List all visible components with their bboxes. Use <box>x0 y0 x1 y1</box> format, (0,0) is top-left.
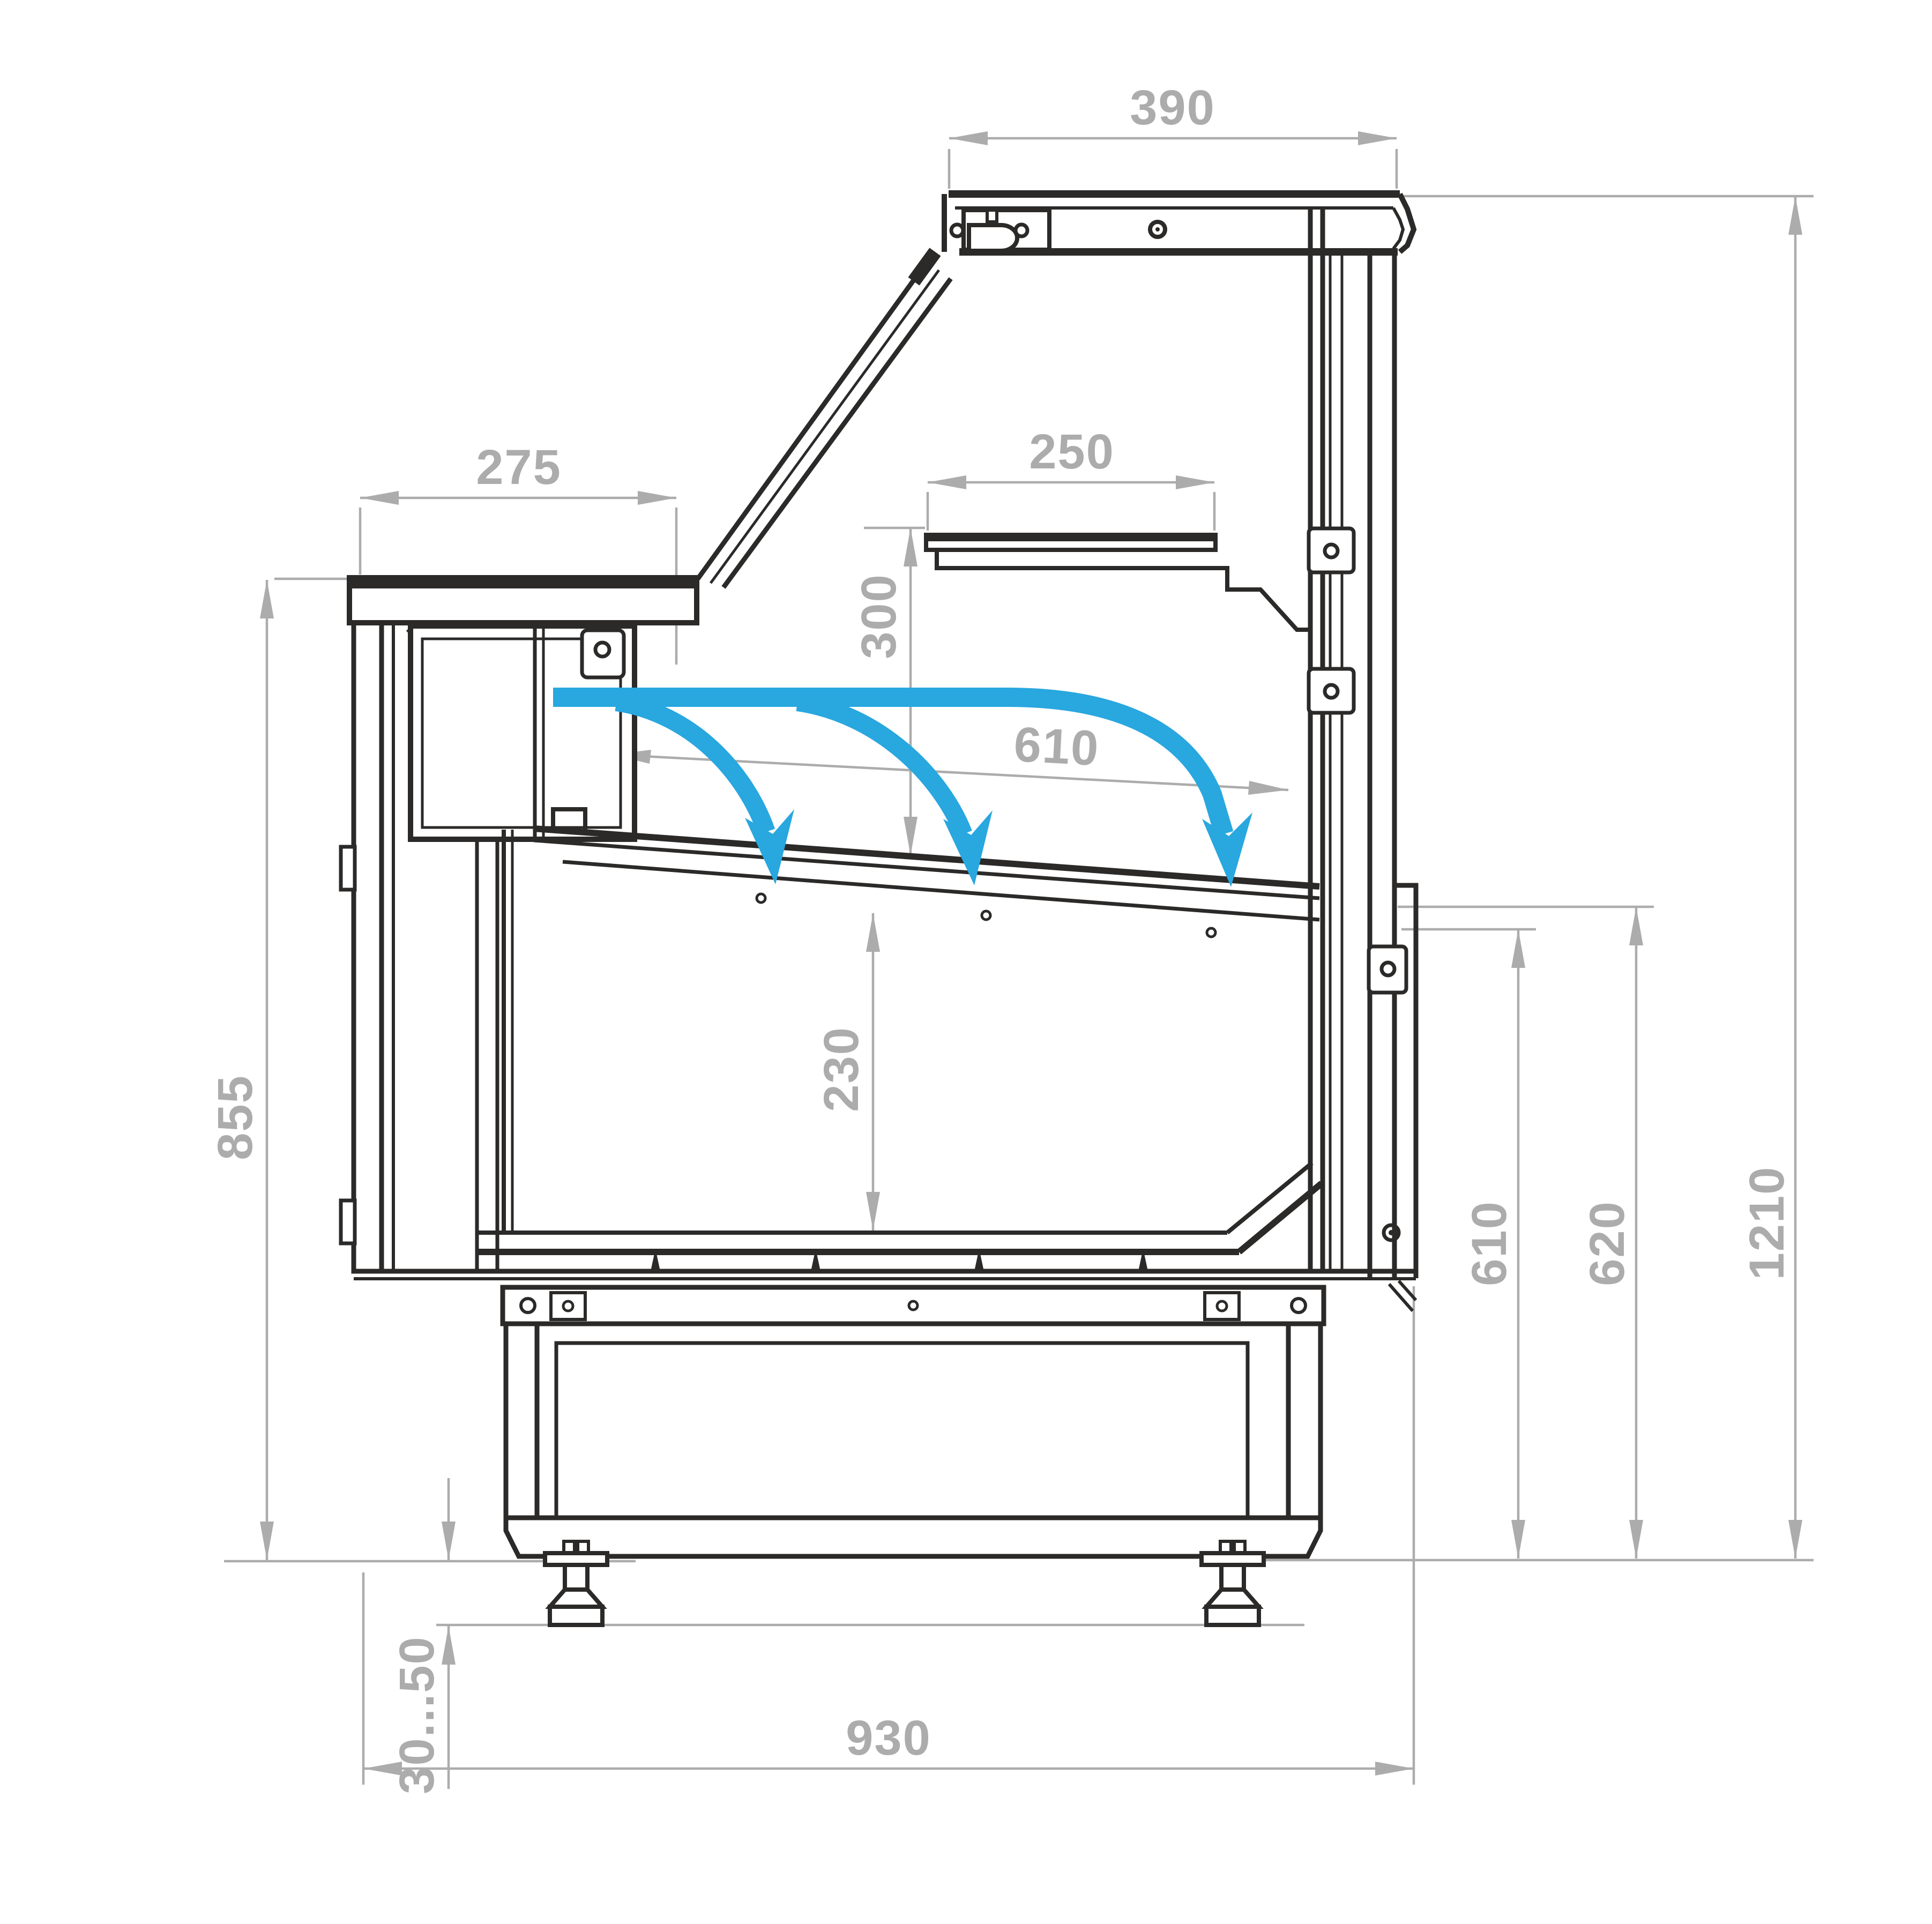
technical-drawing-page: 390 275 250 300 <box>0 0 1932 1924</box>
dim-deck-height: 610 <box>1401 929 1536 1558</box>
lamp-housing <box>951 210 1049 251</box>
case-structure <box>341 194 1416 1625</box>
dim-shelf-clearance-label: 300 <box>852 573 906 659</box>
dim-base-depth-label: 930 <box>846 1711 931 1765</box>
airflow-arrow-front <box>616 702 766 832</box>
dim-rail-height-label: 620 <box>1580 1200 1635 1286</box>
dim-rail-height: 620 <box>1398 907 1654 1558</box>
adjustable-foot-right <box>1202 1541 1264 1625</box>
dim-total-height: 1210 <box>1400 196 1814 1558</box>
cross-section-diagram: 390 275 250 300 <box>0 0 1932 1924</box>
rear-panels <box>1309 208 1416 1278</box>
dim-well-depth: 230 <box>814 913 880 1231</box>
front-glass <box>698 252 951 587</box>
dim-counter-depth-label: 275 <box>476 440 562 495</box>
dim-canopy-depth: 390 <box>949 80 1397 189</box>
dim-well-depth-label: 230 <box>814 1026 869 1112</box>
base-frame <box>354 1249 1416 1556</box>
dim-counter-height: 855 <box>208 580 274 1560</box>
dim-shelf-depth-label: 250 <box>1029 424 1115 479</box>
dim-deck-length-label: 610 <box>1012 717 1101 776</box>
air-duct-box <box>411 626 635 839</box>
display-deck <box>478 809 1322 1252</box>
dim-counter-height-label: 855 <box>208 1075 263 1160</box>
dim-deck-height-label: 610 <box>1462 1200 1517 1286</box>
dim-foot-adjustment: 30...50 <box>390 1478 456 1794</box>
adjustable-foot-left <box>545 1541 607 1625</box>
shelf <box>926 535 1312 630</box>
dim-shelf-depth: 250 <box>928 424 1214 531</box>
dim-total-height-label: 1210 <box>1740 1166 1794 1280</box>
canopy <box>944 194 1414 252</box>
dim-canopy-depth-label: 390 <box>1130 80 1215 135</box>
